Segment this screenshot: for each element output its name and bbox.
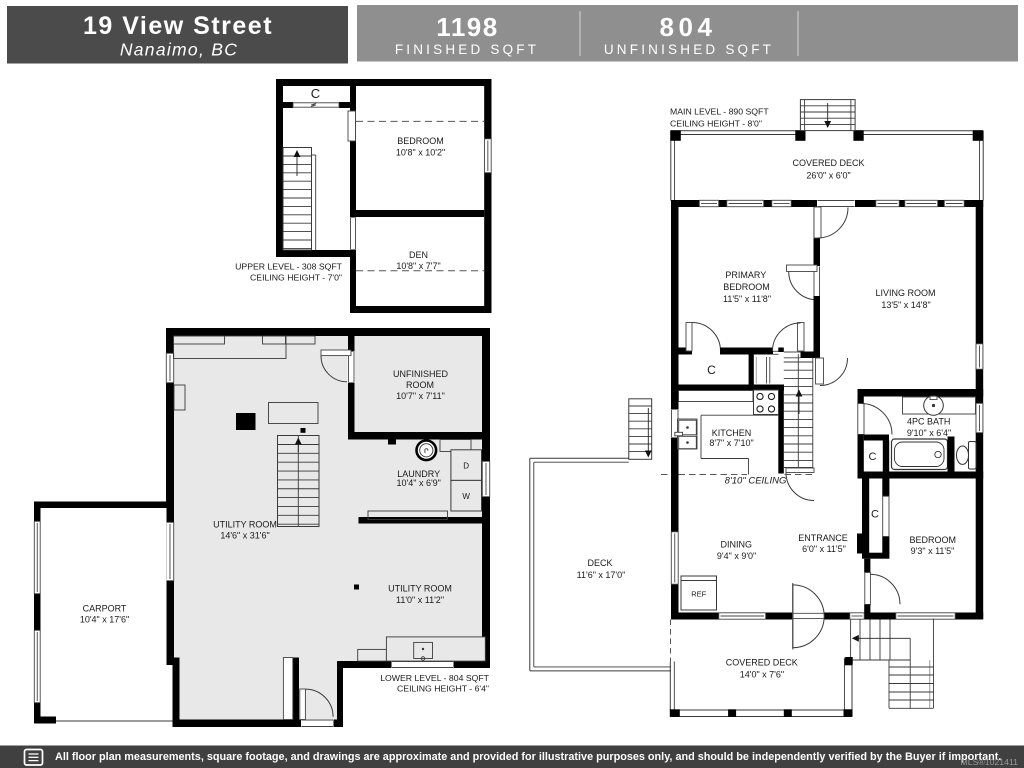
svg-text:C: C bbox=[707, 363, 716, 377]
svg-text:10'7" x 7'11": 10'7" x 7'11" bbox=[396, 391, 445, 401]
svg-text:LIVING ROOM: LIVING ROOM bbox=[875, 288, 935, 298]
svg-text:C: C bbox=[869, 451, 877, 463]
svg-text:11'6" x 17'0": 11'6" x 17'0" bbox=[577, 570, 626, 580]
svg-text:10'4" x 17'6": 10'4" x 17'6" bbox=[80, 615, 129, 625]
svg-text:9'4" x 9'0": 9'4" x 9'0" bbox=[717, 551, 756, 561]
svg-text:11'0" x 11'2": 11'0" x 11'2" bbox=[396, 595, 444, 605]
svg-text:CEILING HEIGHT - 6'4": CEILING HEIGHT - 6'4" bbox=[397, 684, 489, 694]
svg-text:DECK: DECK bbox=[587, 558, 612, 568]
svg-text:8'10" CEILING: 8'10" CEILING bbox=[725, 476, 787, 487]
svg-text:14'0" x 7'6": 14'0" x 7'6" bbox=[740, 670, 784, 680]
svg-text:MAIN LEVEL - 890 SQFT: MAIN LEVEL - 890 SQFT bbox=[670, 107, 769, 117]
svg-text:19 View Street: 19 View Street bbox=[83, 12, 273, 40]
svg-text:6'0" x 11'5": 6'0" x 11'5" bbox=[802, 544, 846, 554]
svg-text:FINISHED SQFT: FINISHED SQFT bbox=[395, 42, 539, 57]
svg-text:804: 804 bbox=[660, 12, 717, 42]
svg-text:9'3" x 11'5": 9'3" x 11'5" bbox=[911, 546, 955, 556]
svg-text:C: C bbox=[311, 86, 320, 101]
svg-text:10'8" x 7'7": 10'8" x 7'7" bbox=[396, 261, 440, 271]
svg-text:COVERED DECK: COVERED DECK bbox=[726, 658, 798, 668]
svg-text:ROOM: ROOM bbox=[406, 380, 434, 390]
svg-text:REF: REF bbox=[691, 590, 706, 599]
svg-text:MLS®1021411: MLS®1021411 bbox=[961, 757, 1019, 767]
svg-text:CEILING HEIGHT - 8'0": CEILING HEIGHT - 8'0" bbox=[670, 118, 762, 128]
svg-text:UTILITY ROOM: UTILITY ROOM bbox=[388, 584, 452, 594]
svg-text:COVERED DECK: COVERED DECK bbox=[792, 158, 864, 168]
svg-text:BEDROOM: BEDROOM bbox=[397, 136, 444, 146]
svg-text:9'10" x 6'4": 9'10" x 6'4" bbox=[907, 428, 951, 438]
svg-text:UPPER LEVEL - 308 SQFT: UPPER LEVEL - 308 SQFT bbox=[235, 262, 343, 272]
svg-text:13'5" x 14'8": 13'5" x 14'8" bbox=[881, 300, 930, 310]
svg-text:11'5" x 11'8": 11'5" x 11'8" bbox=[723, 294, 771, 304]
svg-text:14'6" x 31'6": 14'6" x 31'6" bbox=[220, 531, 269, 541]
svg-text:KITCHEN: KITCHEN bbox=[712, 428, 752, 438]
svg-text:ENTRANCE: ENTRANCE bbox=[798, 533, 848, 543]
svg-text:BEDROOM: BEDROOM bbox=[723, 282, 770, 292]
svg-text:W: W bbox=[462, 492, 470, 501]
svg-text:UNFINISHED SQFT: UNFINISHED SQFT bbox=[604, 42, 774, 57]
svg-text:CEILING HEIGHT - 7'0": CEILING HEIGHT - 7'0" bbox=[250, 273, 342, 283]
svg-text:CARPORT: CARPORT bbox=[83, 604, 127, 614]
svg-text:BEDROOM: BEDROOM bbox=[910, 535, 957, 545]
svg-text:UNFINISHED: UNFINISHED bbox=[393, 369, 449, 379]
svg-text:26'0" x 6'0": 26'0" x 6'0" bbox=[806, 171, 850, 181]
svg-text:All floor plan measurements, s: All floor plan measurements, square foot… bbox=[55, 751, 1001, 763]
svg-text:UTILITY ROOM: UTILITY ROOM bbox=[213, 520, 277, 530]
svg-text:D: D bbox=[463, 462, 469, 471]
svg-text:10'4" x 6'9": 10'4" x 6'9" bbox=[397, 478, 441, 488]
svg-text:LOWER LEVEL - 804 SQFT: LOWER LEVEL - 804 SQFT bbox=[380, 673, 489, 683]
svg-text:Nanaimo, BC: Nanaimo, BC bbox=[120, 40, 238, 60]
svg-text:C: C bbox=[871, 509, 879, 521]
svg-text:1198: 1198 bbox=[436, 12, 498, 42]
svg-text:DINING: DINING bbox=[721, 540, 753, 550]
svg-text:4PC BATH: 4PC BATH bbox=[907, 417, 950, 427]
svg-text:DEN: DEN bbox=[409, 250, 428, 260]
svg-text:PRIMARY: PRIMARY bbox=[725, 270, 766, 280]
svg-text:10'8" x 10'2": 10'8" x 10'2" bbox=[396, 148, 445, 158]
svg-text:8'7" x 7'10": 8'7" x 7'10" bbox=[709, 438, 753, 448]
